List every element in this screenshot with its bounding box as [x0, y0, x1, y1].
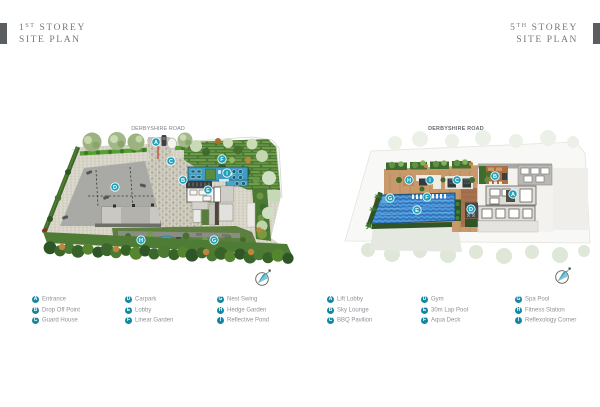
svg-text:D: D: [469, 207, 473, 213]
svg-text:DERBYSHIRE ROAD: DERBYSHIRE ROAD: [131, 126, 185, 132]
svg-text:C: C: [169, 159, 173, 165]
svg-text:H: H: [407, 178, 411, 184]
svg-text:A: A: [154, 140, 158, 146]
svg-text:E: E: [415, 208, 419, 214]
svg-text:G: G: [212, 238, 216, 244]
svg-text:C: C: [455, 178, 459, 184]
svg-text:G: G: [388, 196, 392, 202]
svg-text:B: B: [493, 174, 497, 180]
svg-text:F: F: [425, 195, 429, 201]
svg-text:D: D: [113, 185, 117, 191]
svg-text:E: E: [206, 188, 210, 194]
svg-text:F: F: [220, 157, 224, 163]
svg-text:H: H: [139, 238, 143, 244]
svg-text:B: B: [181, 178, 185, 184]
svg-text:A: A: [511, 192, 515, 198]
svg-text:DERBYSHIRE ROAD: DERBYSHIRE ROAD: [428, 126, 484, 132]
